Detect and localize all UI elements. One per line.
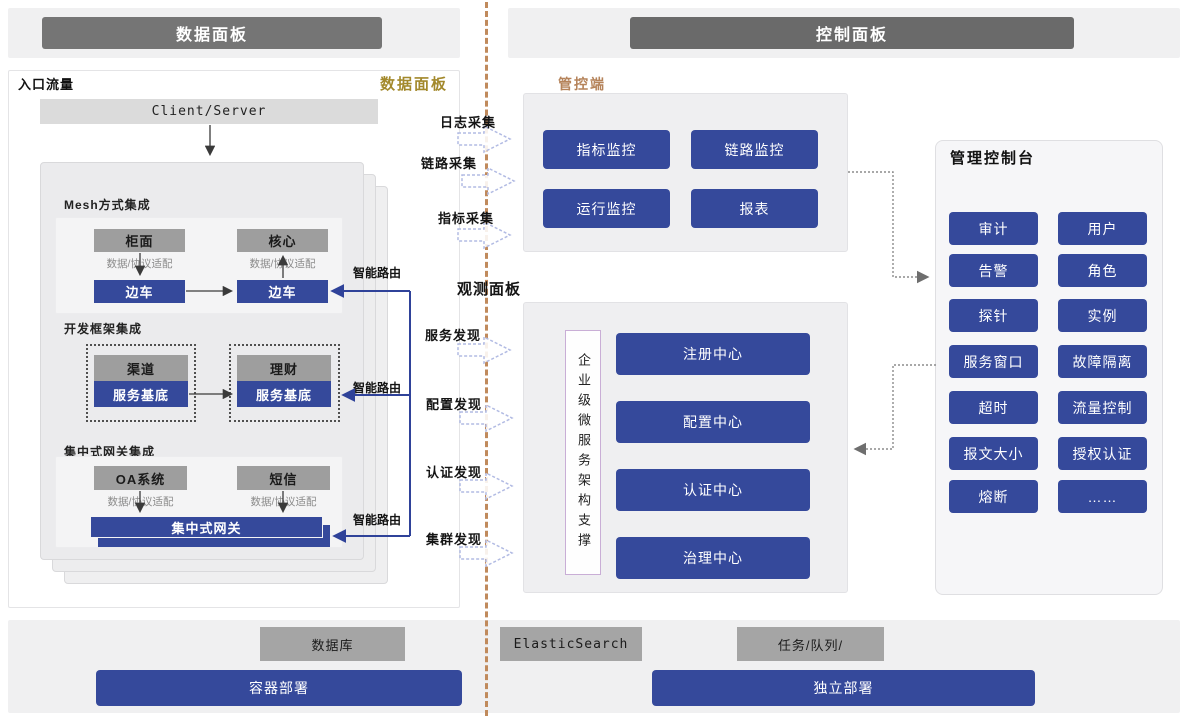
service-window-button[interactable]: 服务窗口 — [949, 345, 1038, 378]
elasticsearch-node: ElasticSearch — [500, 627, 642, 661]
mesh-section-title: Mesh方式集成 — [64, 196, 151, 213]
registry-center-button[interactable]: 注册中心 — [616, 333, 810, 375]
traffic-control-button[interactable]: 流量控制 — [1058, 391, 1147, 424]
runtime-monitor-button[interactable]: 运行监控 — [543, 189, 670, 228]
fault-isolation-button[interactable]: 故障隔离 — [1058, 345, 1147, 378]
flow-label-service-discovery: 服务发现 — [425, 325, 481, 344]
task-queue-node: 任务/队列/ — [737, 627, 884, 661]
centralized-gateway-node: 集中式网关 — [90, 516, 323, 538]
timeout-button[interactable]: 超时 — [949, 391, 1038, 424]
framework-app-right-node: 理财 — [237, 355, 331, 381]
smart-route-label-1: 智能路由 — [353, 264, 401, 281]
config-center-button[interactable]: 配置中心 — [616, 401, 810, 443]
service-base-left-node: 服务基底 — [94, 381, 188, 407]
auth-center-button[interactable]: 认证中心 — [616, 469, 810, 511]
role-button[interactable]: 角色 — [1058, 254, 1147, 287]
flow-label-auth-discovery: 认证发现 — [426, 462, 482, 481]
database-node: 数据库 — [260, 627, 405, 661]
dotted-connectors — [848, 172, 936, 449]
connector-console-to-observe — [856, 365, 936, 449]
user-button[interactable]: 用户 — [1058, 212, 1147, 245]
mesh-adapter-left-label: 数据/协议适配 — [94, 256, 185, 271]
governance-center-button[interactable]: 治理中心 — [616, 537, 810, 579]
mesh-adapter-right-label: 数据/协议适配 — [237, 256, 328, 271]
control-end-label: 管控端 — [558, 74, 606, 94]
flow-label-trace-collect: 链路采集 — [421, 153, 477, 172]
metric-monitor-button[interactable]: 指标监控 — [543, 130, 670, 169]
flow-label-config-discovery: 配置发现 — [426, 394, 482, 413]
trace-monitor-button[interactable]: 链路监控 — [691, 130, 818, 169]
gateway-app-right-node: 短信 — [237, 466, 330, 490]
container-deploy-button[interactable]: 容器部署 — [96, 670, 462, 706]
client-server-node: Client/Server — [40, 99, 378, 124]
observe-panel-title: 观测面板 — [457, 278, 521, 299]
audit-button[interactable]: 审计 — [949, 212, 1038, 245]
probe-button[interactable]: 探针 — [949, 299, 1038, 332]
mesh-app-right-node: 核心 — [237, 229, 328, 252]
standalone-deploy-button[interactable]: 独立部署 — [652, 670, 1035, 706]
plane-divider — [485, 2, 488, 716]
circuit-breaker-button[interactable]: 熔断 — [949, 480, 1038, 513]
sidecar-right-node: 边车 — [237, 280, 328, 303]
architecture-diagram: 数据面板 控制面板 入口流量 数据面板 Client/Server Mesh方式… — [0, 0, 1189, 720]
entry-traffic-label: 入口流量 — [18, 74, 74, 93]
report-button[interactable]: 报表 — [691, 189, 818, 228]
message-size-button[interactable]: 报文大小 — [949, 437, 1038, 470]
microservice-support-label: 企业级微服务架构支撑 — [565, 353, 601, 553]
connector-control-to-console — [848, 172, 927, 277]
service-base-right-node: 服务基底 — [237, 381, 331, 407]
data-plane-corner-label: 数据面板 — [360, 73, 448, 94]
control-plane-header: 控制面板 — [630, 17, 1074, 49]
sidecar-left-node: 边车 — [94, 280, 185, 303]
more-button[interactable]: …… — [1058, 480, 1147, 513]
mesh-app-left-node: 柜面 — [94, 229, 185, 252]
data-plane-header: 数据面板 — [42, 17, 382, 49]
alert-button[interactable]: 告警 — [949, 254, 1038, 287]
gateway-app-left-node: OA系统 — [94, 466, 187, 490]
control-end-panel — [523, 93, 848, 252]
framework-section-title: 开发框架集成 — [64, 320, 142, 337]
smart-route-label-3: 智能路由 — [353, 511, 401, 528]
authz-auth-button[interactable]: 授权认证 — [1058, 437, 1147, 470]
flow-label-metric-collect: 指标采集 — [438, 208, 494, 227]
flow-label-cluster-discovery: 集群发现 — [426, 529, 482, 548]
microservice-support-box: 企业级微服务架构支撑 — [565, 330, 601, 575]
gateway-adapter-right-label: 数据/协议适配 — [237, 494, 330, 509]
instance-button[interactable]: 实例 — [1058, 299, 1147, 332]
gateway-adapter-left-label: 数据/协议适配 — [94, 494, 187, 509]
smart-route-label-2: 智能路由 — [353, 379, 401, 396]
framework-app-left-node: 渠道 — [94, 355, 188, 381]
management-console-title: 管理控制台 — [950, 147, 1035, 168]
flow-label-log-collect: 日志采集 — [440, 112, 496, 131]
